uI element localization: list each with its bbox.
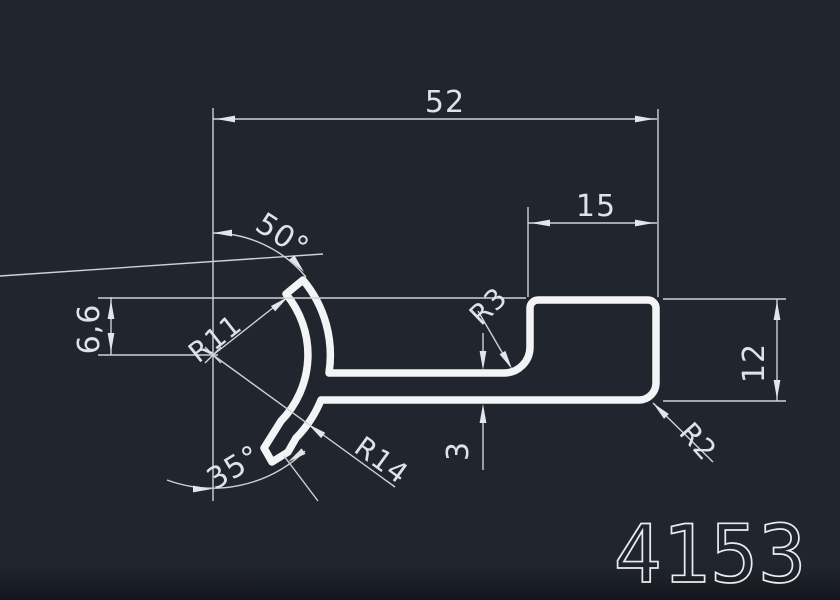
- arrowhead-right: [193, 486, 212, 493]
- arrowhead-right: [635, 116, 654, 123]
- arrowhead-left: [216, 116, 235, 123]
- arrowhead-right: [635, 220, 654, 227]
- angle-ray: [284, 456, 318, 501]
- dim-block-height: 12: [737, 299, 780, 401]
- dim-label-15: 15: [576, 189, 616, 224]
- dim-overall-width: 52: [213, 85, 657, 122]
- arrowhead-down: [774, 380, 781, 399]
- dim-label-r2: R2: [673, 416, 724, 467]
- cad-viewport: 52 15 6,6 12 3 50°: [0, 0, 840, 600]
- cad-canvas: 52 15 6,6 12 3 50°: [0, 0, 840, 600]
- angle-ray: [0, 254, 323, 276]
- arrowhead-left: [213, 230, 232, 237]
- dim-radius-corner: R2: [651, 401, 724, 468]
- dim-angle-top: 50°: [0, 206, 323, 277]
- arrowhead-up: [108, 300, 115, 319]
- dim-offset-height: 6,6: [72, 297, 114, 355]
- arrowhead-down: [480, 351, 487, 370]
- dim-label-3: 3: [441, 441, 476, 461]
- arrowhead-up: [774, 301, 781, 320]
- arrowhead-left: [531, 220, 550, 227]
- dim-angle-bottom: 35°: [167, 438, 318, 501]
- arrowhead-down: [108, 333, 115, 352]
- dim-label-6-6: 6,6: [72, 304, 107, 355]
- part-number: 4153: [614, 508, 807, 600]
- arrowhead-up: [480, 404, 487, 423]
- dim-label-52: 52: [425, 85, 465, 120]
- dim-label-12: 12: [737, 343, 772, 383]
- dim-label-r3: R3: [463, 281, 514, 332]
- dim-label-r11: R11: [182, 308, 248, 370]
- arrowhead: [651, 401, 669, 419]
- dim-radius-inner: R11: [182, 294, 290, 369]
- dim-block-width: 15: [528, 189, 657, 226]
- dim-radius-fillet: R3: [463, 281, 515, 371]
- dim-label-r14: R14: [348, 430, 414, 491]
